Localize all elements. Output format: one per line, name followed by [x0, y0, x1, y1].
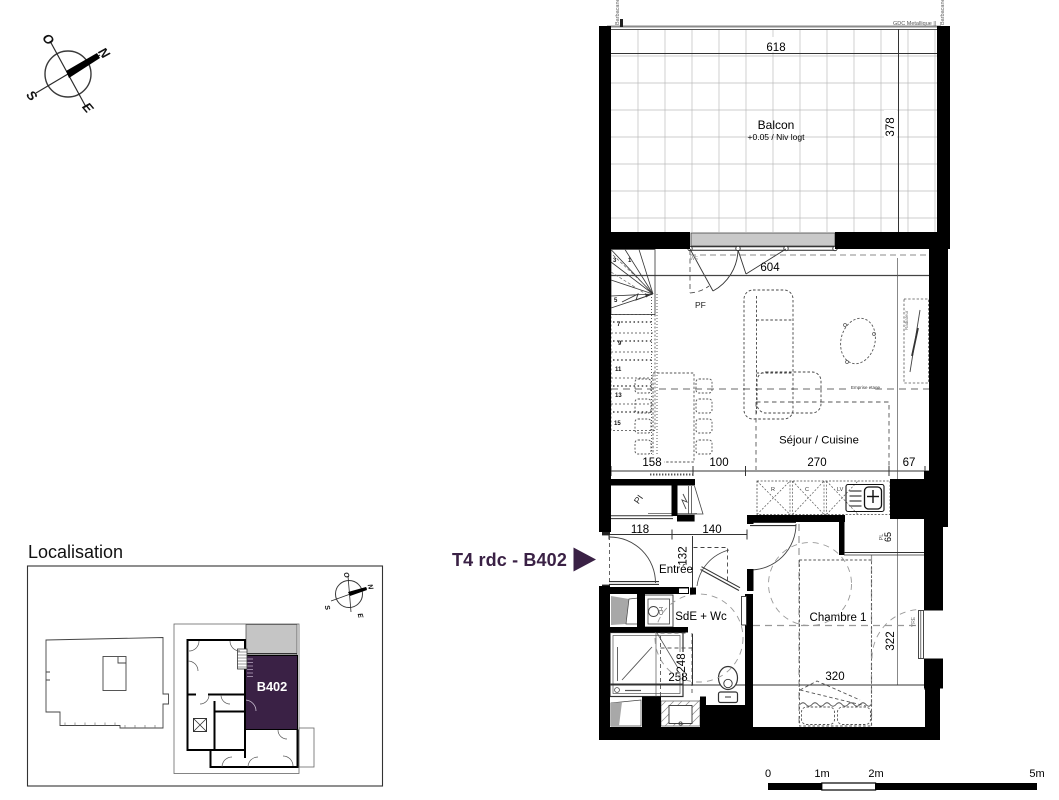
svg-text:158: 158 [642, 457, 661, 469]
svg-text:GDC Metallique ||: GDC Metallique || [893, 21, 936, 27]
svg-text:T4 rdc - B402: T4 rdc - B402 [452, 550, 567, 570]
svg-text:0: 0 [765, 768, 771, 780]
svg-text:WE: WE [690, 256, 699, 262]
svg-text:2m: 2m [868, 768, 883, 780]
svg-text:270: 270 [807, 457, 826, 469]
svg-text:118: 118 [631, 524, 649, 536]
svg-text:132: 132 [678, 546, 690, 565]
svg-text:PL: PL [879, 534, 885, 541]
svg-text:Barbacane: Barbacane [615, 0, 621, 25]
svg-text:604: 604 [760, 262, 780, 274]
svg-text:C: C [805, 487, 809, 493]
svg-text:Barbacane: Barbacane [940, 0, 946, 25]
svg-text:5m: 5m [1029, 768, 1044, 780]
svg-text:140: 140 [702, 524, 721, 536]
svg-text:13: 13 [615, 393, 622, 399]
svg-text:Balcon: Balcon [758, 118, 795, 132]
svg-text:Radiateur: Radiateur [904, 310, 909, 330]
svg-text:PF: PF [695, 300, 706, 310]
svg-text:YRE: YRE [911, 616, 917, 627]
svg-text:Localisation: Localisation [28, 542, 123, 562]
svg-text:Chambre 1: Chambre 1 [810, 612, 867, 624]
svg-text:67: 67 [903, 457, 916, 469]
svg-text:258: 258 [668, 672, 687, 684]
svg-text:Emprise etage: Emprise etage [851, 385, 881, 390]
svg-text:378: 378 [885, 117, 897, 136]
svg-text:248: 248 [676, 653, 688, 672]
svg-text:618: 618 [766, 42, 785, 54]
svg-text:320: 320 [825, 671, 844, 683]
svg-text:B402: B402 [257, 679, 288, 694]
svg-text:Entrée: Entrée [659, 564, 693, 576]
svg-text:SdE + Wc: SdE + Wc [675, 611, 727, 623]
svg-text:R: R [771, 487, 775, 493]
svg-text:Séjour / Cuisine: Séjour / Cuisine [779, 435, 859, 447]
svg-text:1m: 1m [814, 768, 829, 780]
svg-text:+0.05 / Niv logt: +0.05 / Niv logt [748, 132, 806, 142]
svg-text:100: 100 [709, 457, 728, 469]
svg-text:LV: LV [837, 487, 844, 493]
svg-text:15: 15 [614, 421, 621, 427]
svg-text:11: 11 [615, 367, 622, 373]
svg-text:322: 322 [885, 631, 897, 650]
